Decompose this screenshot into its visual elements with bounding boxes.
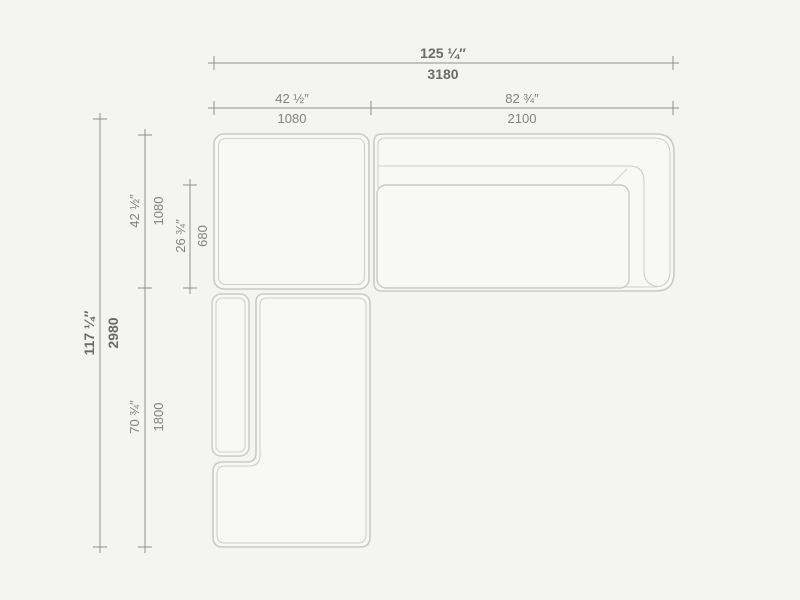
chaise-armrest-outline: [212, 294, 249, 456]
corner-module: [214, 134, 369, 289]
dim-corner-module-depth-metric: 1080: [151, 197, 166, 226]
dim-line-module-depths: [138, 129, 152, 553]
dim-chaise-length-metric: 1800: [151, 403, 166, 432]
chaise-module: [212, 294, 370, 547]
dim-overall-depth-metric: 2980: [105, 317, 121, 348]
dim-corner-module-depth-imperial: 42 ½″: [127, 194, 142, 228]
sofa-dimension-drawing: 125 ¼″ 3180 42 ½″ 1080 82 ¾″ 2100 117 ¼″…: [0, 0, 800, 600]
dim-overall-depth-imperial: 117 ¼″: [81, 310, 97, 355]
dim-corner-module-width-metric: 1080: [278, 111, 307, 126]
technical-drawing-canvas: 125 ¼″ 3180 42 ½″ 1080 82 ¾″ 2100 117 ¼″…: [0, 0, 800, 600]
dim-sofa-module-width-metric: 2100: [508, 111, 537, 126]
right-sofa-module: [374, 134, 674, 291]
corner-module-outline: [214, 134, 369, 289]
dim-seat-depth-imperial: 26 ¾″: [173, 219, 188, 253]
dim-overall-width-metric: 3180: [427, 66, 458, 82]
right-sofa-seat-cushion: [377, 185, 629, 288]
dim-sofa-module-width-imperial: 82 ¾″: [505, 91, 539, 106]
dim-chaise-length-imperial: 70 ¾″: [127, 400, 142, 434]
dim-corner-module-width-imperial: 42 ½″: [275, 91, 309, 106]
dim-overall-width-imperial: 125 ¼″: [420, 45, 466, 61]
dim-seat-depth-metric: 680: [195, 225, 210, 247]
